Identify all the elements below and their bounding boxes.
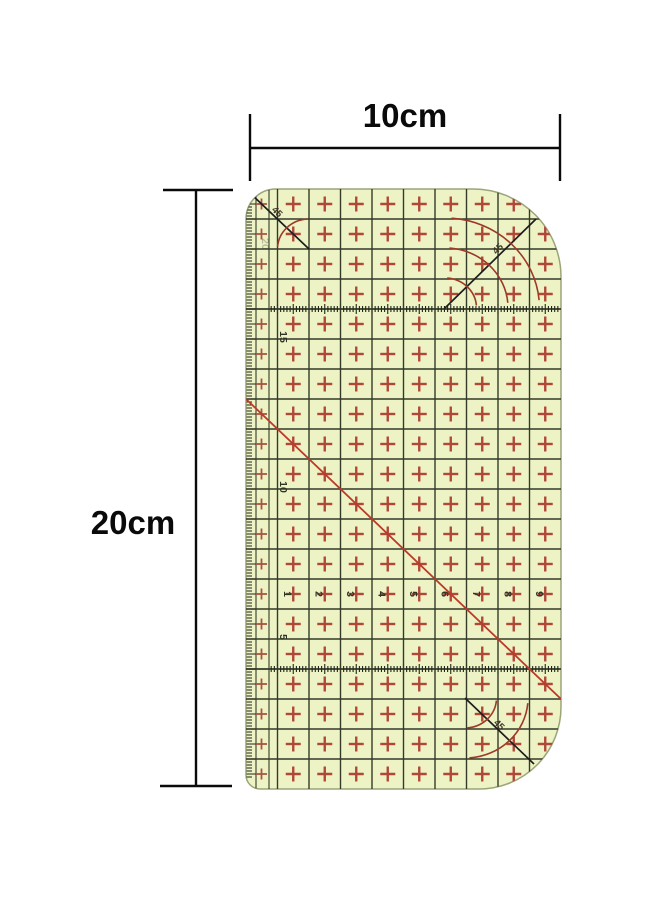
h-scale-number: 3 [344,591,356,597]
h-scale-number: 5 [407,591,419,597]
v-scale-number: 15 [277,331,289,343]
product-image: 10cm 20cm 1234567892015105 454545 [0,0,660,900]
ruler: 1234567892015105 454545 [246,189,561,789]
height-dimension-label: 20cm [91,504,175,541]
width-dimension-label: 10cm [363,97,447,134]
h-scale-number: 7 [470,591,482,597]
h-scale-number: 2 [313,591,325,597]
ruler-grid: 1234567892015105 [246,189,561,789]
v-scale-number: 10 [277,481,289,493]
h-scale-number: 9 [533,591,545,597]
h-scale-number: 4 [376,591,388,597]
hot-ruler-diagram: 10cm 20cm 1234567892015105 454545 [0,0,660,900]
v-scale-number: 20 [259,238,271,250]
height-dimension: 20cm [91,190,233,786]
v-scale-number: 5 [277,634,289,640]
width-dimension: 10cm [250,97,560,181]
h-scale-number: 8 [502,591,514,597]
h-scale-number: 1 [281,591,293,597]
